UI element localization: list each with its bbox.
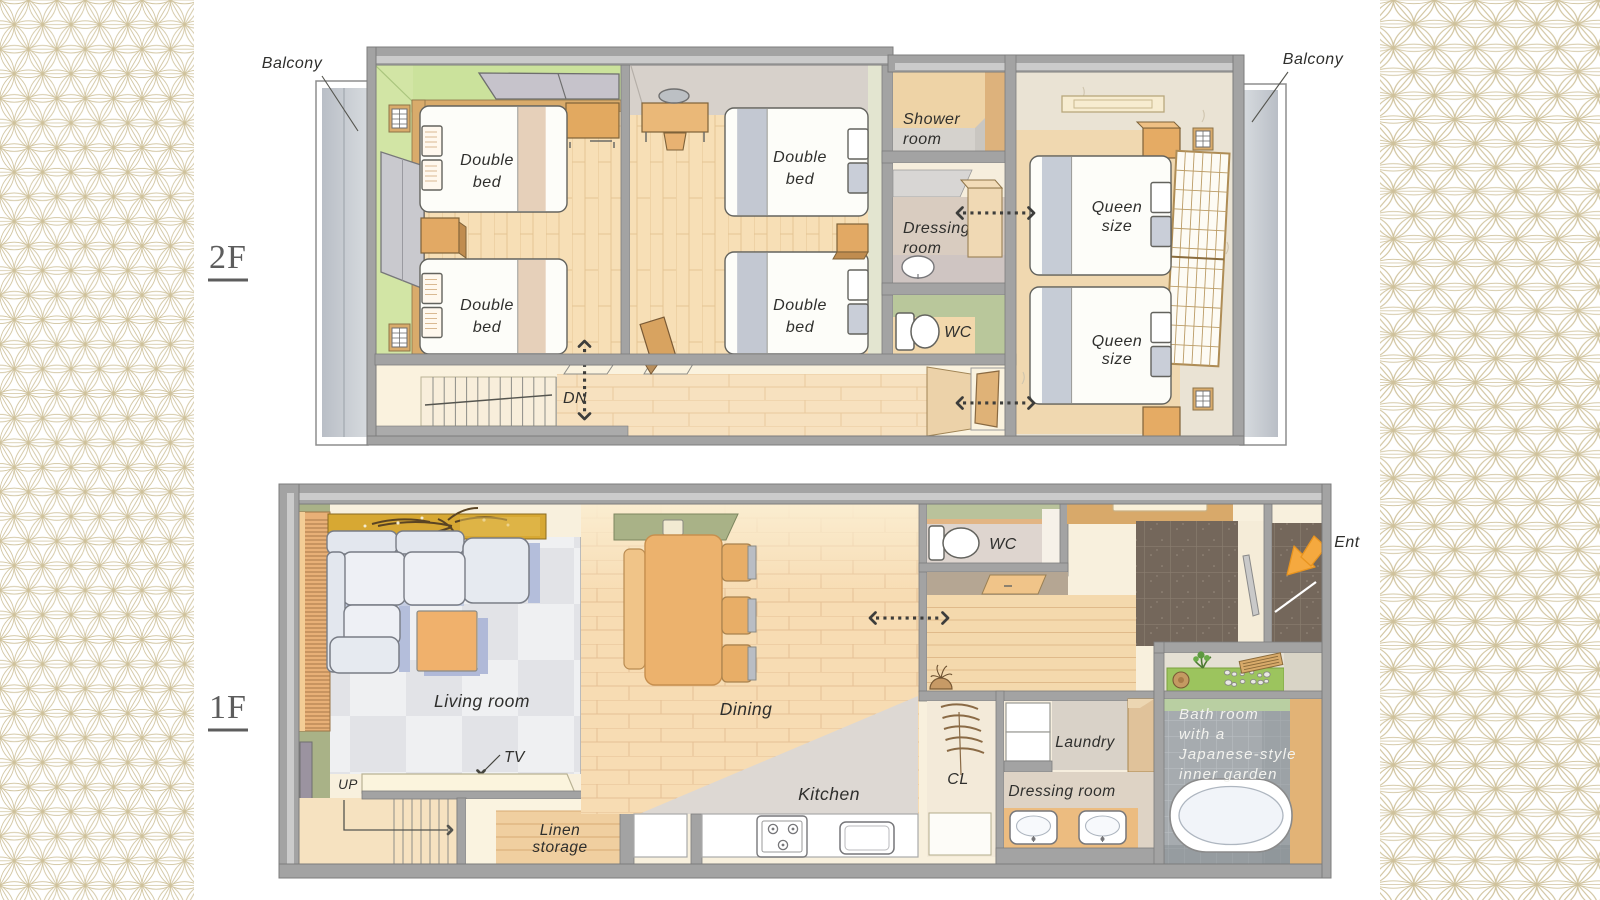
svg-text:Kitchen: Kitchen <box>798 784 860 804</box>
svg-text:Japanese-style: Japanese-style <box>1178 746 1297 763</box>
svg-text:Dressing room: Dressing room <box>1008 783 1115 800</box>
svg-text:room: room <box>903 240 941 257</box>
svg-text:Ent: Ent <box>1334 534 1360 551</box>
svg-text:WC: WC <box>989 536 1017 553</box>
svg-text:Living room: Living room <box>434 691 530 711</box>
svg-text:bed: bed <box>786 171 815 188</box>
svg-text:Double: Double <box>773 297 827 314</box>
svg-text:DN: DN <box>563 390 587 407</box>
svg-text:CL: CL <box>947 771 968 788</box>
svg-text:Balcony: Balcony <box>262 55 323 72</box>
svg-text:bed: bed <box>473 174 502 191</box>
svg-text:Double: Double <box>460 297 514 314</box>
svg-text:with a: with a <box>1179 726 1225 743</box>
svg-text:2F: 2F <box>209 239 247 276</box>
svg-text:Linen: Linen <box>540 822 580 839</box>
svg-text:inner garden: inner garden <box>1179 766 1278 783</box>
svg-text:size: size <box>1102 351 1132 368</box>
svg-text:Laundry: Laundry <box>1055 734 1115 751</box>
svg-text:bed: bed <box>786 319 815 336</box>
svg-text:size: size <box>1102 218 1132 235</box>
svg-text:Balcony: Balcony <box>1283 51 1344 68</box>
svg-text:Double: Double <box>773 149 827 166</box>
svg-text:UP: UP <box>338 777 358 792</box>
svg-text:WC: WC <box>944 324 972 341</box>
svg-text:Bath room: Bath room <box>1179 706 1259 723</box>
svg-text:Dining: Dining <box>720 699 773 719</box>
svg-text:Double: Double <box>460 152 514 169</box>
svg-text:TV: TV <box>504 749 526 766</box>
svg-text:Dressing: Dressing <box>903 220 970 237</box>
svg-text:room: room <box>903 131 941 148</box>
svg-text:Shower: Shower <box>903 111 960 128</box>
svg-text:Queen: Queen <box>1092 199 1143 216</box>
svg-text:Queen: Queen <box>1092 333 1143 350</box>
svg-text:1F: 1F <box>209 689 247 726</box>
svg-text:storage: storage <box>532 839 587 856</box>
svg-text:bed: bed <box>473 319 502 336</box>
